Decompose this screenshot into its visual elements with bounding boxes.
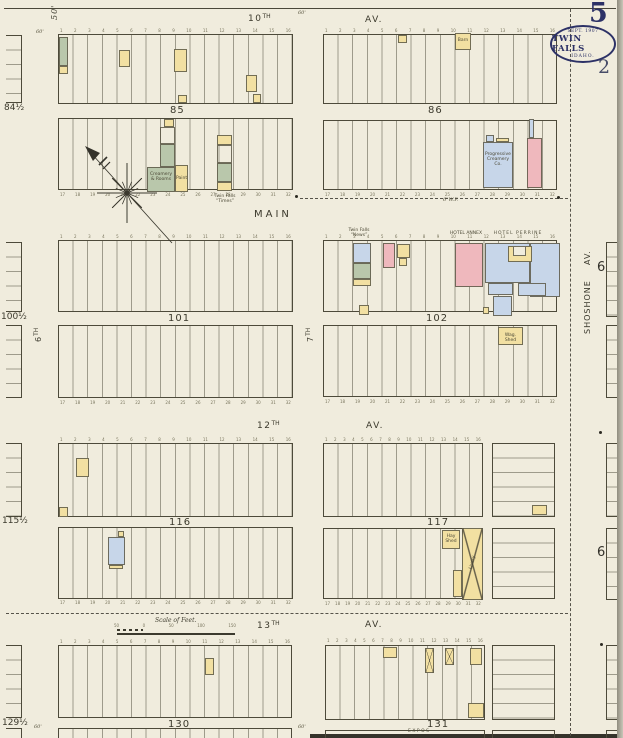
tick-label: 16	[285, 639, 290, 644]
tick-label: 19	[90, 400, 95, 405]
tick-label: 23	[415, 192, 420, 197]
tick-label: 32	[550, 192, 555, 197]
building-frame	[483, 307, 489, 314]
tick-label: 9	[437, 234, 440, 239]
tick-label: 12	[219, 437, 224, 442]
tick-label: 11	[203, 234, 208, 239]
tick-label: 31	[271, 600, 276, 605]
tick-label: 15	[466, 638, 471, 643]
lot-numbers: 17181920212223242526272829303132	[60, 600, 291, 605]
partial-block-129h-upper	[6, 645, 22, 718]
building-frame	[59, 66, 68, 74]
tick-label: 24	[165, 600, 170, 605]
tick-label: 28	[490, 192, 495, 197]
tick-label: 17	[60, 600, 65, 605]
tick-label: 12	[431, 638, 436, 643]
block-101-upper	[58, 240, 293, 312]
building-frame	[383, 647, 397, 658]
tick-label: 11	[420, 638, 425, 643]
tick-label: 17	[60, 192, 65, 197]
building-outline	[217, 145, 232, 163]
tick-label: 20	[370, 399, 375, 404]
tick-label: 2	[336, 638, 339, 643]
tick-label: 19	[345, 601, 350, 606]
tick-label: 26	[460, 399, 465, 404]
block-label-100h: 100½	[1, 312, 27, 322]
tick-label: 2	[339, 234, 342, 239]
adjacent-sheet-ref-upper: 6	[597, 260, 605, 275]
east-partial-block-4	[606, 528, 617, 600]
tick-label: 11	[203, 28, 208, 33]
tick-label: 21	[120, 600, 125, 605]
dim-50ft: 50'	[50, 5, 59, 20]
tick-label: 8	[423, 234, 426, 239]
lot-numbers: 12345678910111213141516	[325, 28, 555, 33]
tick-label: 16	[286, 437, 291, 442]
tick-label: 7	[144, 28, 147, 33]
street-label-13th: 13TH	[257, 620, 280, 631]
tick-label: 18	[75, 400, 80, 405]
building-frame	[397, 244, 410, 258]
building-frame	[453, 570, 462, 597]
building-brick	[383, 243, 395, 268]
building-hotel-ext	[488, 283, 513, 295]
tick-label: 31	[535, 399, 540, 404]
hydrant-dot	[557, 196, 560, 199]
tick-label: 14	[252, 639, 257, 644]
tick-label: 5	[116, 28, 119, 33]
tick-label: 23	[415, 399, 420, 404]
tick-label: 0	[143, 623, 146, 628]
tick-label: 8	[390, 638, 393, 643]
tick-label: 7	[379, 437, 382, 442]
east-partial-block-2	[606, 325, 617, 398]
tick-label: 18	[340, 192, 345, 197]
tick-label: 32	[286, 400, 291, 405]
tick-label: 10	[408, 638, 413, 643]
tick-label: 10	[406, 437, 411, 442]
building-frame	[246, 75, 257, 92]
times-line2: “Times”	[216, 199, 234, 204]
stamp-state: IDAHO.	[571, 54, 594, 59]
tick-label: 17	[325, 192, 330, 197]
building-frame	[119, 50, 130, 67]
tick-label: 16	[550, 234, 555, 239]
tick-label: 12	[219, 639, 224, 644]
tick-label: 14	[455, 638, 460, 643]
tick-label: 24	[430, 399, 435, 404]
street-10-num: 10	[248, 14, 262, 24]
hay-line2: Shed	[445, 539, 456, 544]
tick-label: 16	[550, 28, 555, 33]
partial-block-84h	[6, 35, 22, 103]
tick-label: 3	[88, 437, 91, 442]
tick-label: 8	[158, 28, 161, 33]
tick-label: 21	[120, 400, 125, 405]
tick-label: 25	[180, 400, 185, 405]
tick-label: 23	[150, 400, 155, 405]
hydrant-dot	[295, 195, 298, 198]
tick-label: 9	[172, 28, 175, 33]
tick-label: 27	[210, 400, 215, 405]
tick-label: 14	[253, 234, 258, 239]
paper-right-edge	[617, 0, 623, 738]
building-frame	[532, 505, 547, 515]
tick-label: 4	[367, 28, 370, 33]
tick-label: 26	[195, 600, 200, 605]
tick-label: 3	[88, 639, 91, 644]
tick-label: 13	[441, 437, 446, 442]
tick-label: 9	[172, 639, 175, 644]
tick-label: 15	[269, 234, 274, 239]
building-barn-x	[445, 648, 454, 665]
lot-numbers: 12345678910111213141516	[327, 638, 483, 643]
tick-label: 21	[365, 601, 370, 606]
tick-label: 100	[197, 623, 205, 628]
tick-label: 4	[102, 639, 105, 644]
tick-label: 50	[169, 623, 174, 628]
tick-label: 20	[370, 192, 375, 197]
tick-label: 13	[236, 28, 241, 33]
tick-label: 30	[520, 399, 525, 404]
tick-label: 28	[436, 601, 441, 606]
tick-label: 10	[186, 437, 191, 442]
building-brick	[527, 138, 542, 188]
building-chimney	[529, 119, 534, 138]
tick-label: 1	[327, 638, 330, 643]
tick-label: 31	[271, 192, 276, 197]
tick-label: 14	[453, 437, 458, 442]
tick-label: 27	[475, 192, 480, 197]
tick-label: 150	[228, 623, 236, 628]
tick-label: 21	[385, 192, 390, 197]
block-131-lower-partial-left	[325, 730, 485, 738]
street-6-ord: TH	[33, 328, 40, 336]
tick-label: 5	[381, 234, 384, 239]
lot-numbers: 17181920212223242526272829303132	[325, 601, 481, 606]
tick-label: 12	[429, 437, 434, 442]
compass-rose	[70, 110, 182, 250]
tick-label: 3	[88, 28, 91, 33]
block-131-right	[492, 645, 555, 720]
street-13-num: 13	[257, 621, 271, 631]
tick-label: 12	[484, 234, 489, 239]
tick-label: 1	[60, 28, 63, 33]
street-label-7th: 7TH	[305, 328, 315, 342]
partial-block-129h-lower	[6, 728, 22, 738]
tick-label: 30	[256, 400, 261, 405]
tick-label: 20	[105, 600, 110, 605]
building-printing	[353, 263, 371, 279]
times-label: Twin Falls “Times”	[205, 194, 245, 204]
tick-label: 7	[144, 437, 147, 442]
progressive-line2: Creamery Co.	[487, 157, 509, 167]
tick-label: 17	[325, 399, 330, 404]
tick-label: 22	[135, 600, 140, 605]
tick-label: 6	[130, 28, 133, 33]
tick-label: 2	[334, 437, 337, 442]
progressive-label: Progressive Creamery Co.	[484, 152, 512, 168]
block-label-101: 101	[168, 313, 190, 324]
tick-label: 1	[60, 437, 63, 442]
street-13-ord: TH	[271, 620, 279, 627]
block-label-86: 86	[428, 105, 443, 116]
building-frame	[359, 305, 369, 315]
tick-label: 6	[130, 437, 133, 442]
east-partial-block-3	[606, 443, 617, 517]
scale-tick-labels: 50050100150	[114, 623, 236, 628]
tick-label: 3	[343, 437, 346, 442]
building-special	[217, 163, 232, 182]
hay-shed-label: Hay Shed	[443, 534, 459, 544]
tick-label: 11	[202, 639, 207, 644]
exposition-label: EXPOS-	[408, 729, 434, 734]
tick-label: 2	[74, 437, 77, 442]
partial-block-100h-lower	[6, 325, 22, 398]
tick-label: 25	[180, 600, 185, 605]
building-hotel-ext	[518, 283, 546, 296]
tick-label: 11	[203, 437, 208, 442]
tick-label: 31	[466, 601, 471, 606]
tick-label: 29	[241, 400, 246, 405]
lot-numbers: 12345678910111213141516	[60, 437, 291, 442]
building-frame	[109, 565, 123, 569]
tick-label: 27	[475, 399, 480, 404]
compass-star	[97, 163, 157, 223]
tick-label: 30	[456, 601, 461, 606]
tick-label: 10	[186, 234, 191, 239]
tick-label: 9	[399, 638, 402, 643]
tick-label: 15	[533, 28, 538, 33]
tick-label: 7	[381, 638, 384, 643]
tick-label: 1	[325, 28, 328, 33]
tick-label: 23	[385, 601, 390, 606]
tick-label: 14	[253, 437, 258, 442]
tick-label: 30	[256, 192, 261, 197]
tick-label: 4	[352, 437, 355, 442]
tick-label: 2	[74, 28, 77, 33]
block-label-116: 116	[169, 517, 191, 528]
tick-label: 26	[415, 601, 420, 606]
building-hotel-court-notch	[513, 246, 526, 256]
street-6-num: 6	[34, 336, 43, 342]
tick-label: 4	[102, 28, 105, 33]
tick-label: 20	[105, 400, 110, 405]
tick-label: 15	[269, 28, 274, 33]
tick-label: 16	[476, 437, 481, 442]
tick-label: 6	[395, 28, 398, 33]
street-label-6th: 6TH	[33, 328, 43, 342]
block-101-lower	[58, 325, 293, 398]
east-partial-block-5	[606, 645, 617, 720]
tick-label: 7	[409, 28, 412, 33]
sheet-number: 5	[589, 0, 608, 29]
street-12-num: 12	[257, 421, 271, 431]
building-frame	[205, 658, 214, 675]
building-hotel-annex	[455, 243, 483, 287]
block-label-130: 130	[168, 719, 190, 730]
dim-60ft: 60'	[298, 10, 306, 16]
lot-numbers: 12345678910111213141516	[325, 437, 481, 442]
building-stone	[353, 243, 371, 263]
corner-number: 2	[598, 56, 610, 78]
street-label-av-13: AV.	[365, 620, 383, 630]
building-frame	[178, 95, 187, 103]
lot-numbers: 17181920212223242526272829303132	[60, 400, 291, 405]
block-131-left	[325, 645, 485, 720]
block-label-129h: 129½	[2, 718, 28, 728]
news-label: Twin Falls “News”	[344, 228, 374, 238]
barn-label: Barn	[456, 38, 470, 43]
tick-label: 9	[437, 28, 440, 33]
block-86-lower	[323, 120, 557, 190]
tick-label: 32	[550, 399, 555, 404]
news-line2: “News”	[351, 233, 368, 238]
building-frame	[353, 279, 371, 286]
building-frame	[174, 49, 187, 72]
shoshone-street-dashed-line	[570, 9, 571, 736]
tick-label: 20	[355, 601, 360, 606]
partial-block-100h-upper	[6, 242, 22, 312]
stamp-city: TWIN FALLS	[552, 34, 614, 54]
street-label-shoshone: SHOSHONE	[583, 280, 592, 334]
tick-label: 26	[195, 192, 200, 197]
tick-label: 9	[172, 437, 175, 442]
tick-label: 19	[90, 600, 95, 605]
tick-label: 15	[464, 437, 469, 442]
tick-label: 8	[158, 639, 161, 644]
street-label-main: MAIN	[254, 209, 292, 220]
tick-label: 15	[269, 437, 274, 442]
building-frame	[59, 507, 68, 517]
building-frame	[217, 182, 232, 191]
street-12-ord: TH	[271, 420, 279, 427]
tick-label: 22	[375, 601, 380, 606]
tick-label: 23	[150, 600, 155, 605]
block-label-115h: 115½	[2, 516, 28, 526]
building-frame	[76, 458, 89, 477]
tick-label: 22	[135, 400, 140, 405]
tick-label: 10	[186, 28, 191, 33]
top-border-line	[4, 8, 616, 9]
tick-label: 19	[355, 399, 360, 404]
tick-label: 21	[385, 399, 390, 404]
wagon-shed-label: Wag. Shed	[499, 333, 522, 343]
tick-label: 50	[114, 623, 119, 628]
dim-60ft: 60'	[34, 724, 42, 730]
tick-label: 5	[116, 639, 119, 644]
tick-label: 26	[460, 192, 465, 197]
tick-label: 7	[409, 234, 412, 239]
tick-label: 22	[400, 399, 405, 404]
block-86-upper	[323, 34, 557, 104]
sanborn-map-sheet: 12345678910111213141516 1234567891011121…	[0, 0, 623, 738]
hydrant-dot	[600, 643, 603, 646]
building-dwelling	[108, 537, 125, 565]
tick-label: 28	[490, 399, 495, 404]
tick-label: 1	[60, 639, 63, 644]
block-label-102: 102	[426, 313, 448, 324]
building-machinery	[486, 135, 494, 142]
tick-label: 2	[339, 28, 342, 33]
tick-label: 32	[476, 601, 481, 606]
tick-label: 29	[446, 601, 451, 606]
north-arrow-head	[85, 146, 100, 161]
street-10-ord: TH	[262, 13, 270, 20]
tick-label: 17	[325, 601, 330, 606]
building-frame	[217, 135, 232, 145]
lot-numbers: 17181920212223242526272829303132	[325, 399, 555, 404]
tick-label: 6	[372, 638, 375, 643]
tick-label: 10	[186, 639, 191, 644]
tick-label: 4	[102, 437, 105, 442]
thirteenth-street-dashed-line	[6, 613, 568, 614]
hydrant-dot	[599, 431, 602, 434]
tick-label: 8	[388, 437, 391, 442]
tick-label: 32	[286, 192, 291, 197]
building-special	[59, 37, 68, 66]
tick-label: 22	[400, 192, 405, 197]
tick-label: 12	[219, 28, 224, 33]
tick-label: 15	[268, 639, 273, 644]
tick-label: 5	[363, 638, 366, 643]
tick-label: 29	[505, 192, 510, 197]
tick-label: 4	[354, 638, 357, 643]
tick-label: 29	[505, 399, 510, 404]
building-frame	[398, 35, 407, 43]
tick-label: 2	[74, 639, 77, 644]
block-label-117: 117	[427, 517, 449, 528]
tick-label: 24	[395, 601, 400, 606]
tick-label: 13	[236, 437, 241, 442]
block-label-84h: 84½	[4, 103, 24, 113]
scale-bar	[117, 629, 235, 635]
building-frame	[399, 258, 407, 266]
tick-label: 31	[271, 400, 276, 405]
tick-label: 5	[361, 437, 364, 442]
tick-label: 1	[60, 234, 63, 239]
tick-label: 9	[397, 437, 400, 442]
tick-label: 24	[165, 400, 170, 405]
tick-label: 28	[226, 400, 231, 405]
east-partial-block-1	[606, 242, 617, 317]
tick-label: 17	[60, 400, 65, 405]
tick-label: 3	[345, 638, 348, 643]
dim-60ft: 60'	[298, 724, 306, 730]
block-117-upper-left	[323, 443, 483, 517]
hotel-annex-label: HOTEL ANNEX	[448, 231, 484, 236]
tick-label: 6	[395, 234, 398, 239]
tick-label: 13	[236, 234, 241, 239]
street-7-ord: TH	[305, 328, 312, 336]
tick-label: 18	[340, 399, 345, 404]
tick-label: 28	[226, 600, 231, 605]
tick-label: 26	[195, 400, 200, 405]
tick-label: 1	[325, 437, 328, 442]
building-stone	[493, 296, 512, 316]
street-label-av-12: AV.	[366, 421, 384, 431]
partial-block-115h	[6, 443, 22, 517]
tick-label: 27	[210, 600, 215, 605]
tick-label: 5	[381, 28, 384, 33]
tick-label: 29	[241, 600, 246, 605]
block-131-lower-partial-right	[492, 730, 555, 738]
tick-label: 12	[484, 28, 489, 33]
adjacent-sheet-ref-lower: 6	[597, 545, 605, 560]
tick-label: 30	[520, 192, 525, 197]
tick-label: 11	[418, 437, 423, 442]
tick-label: 5	[116, 437, 119, 442]
